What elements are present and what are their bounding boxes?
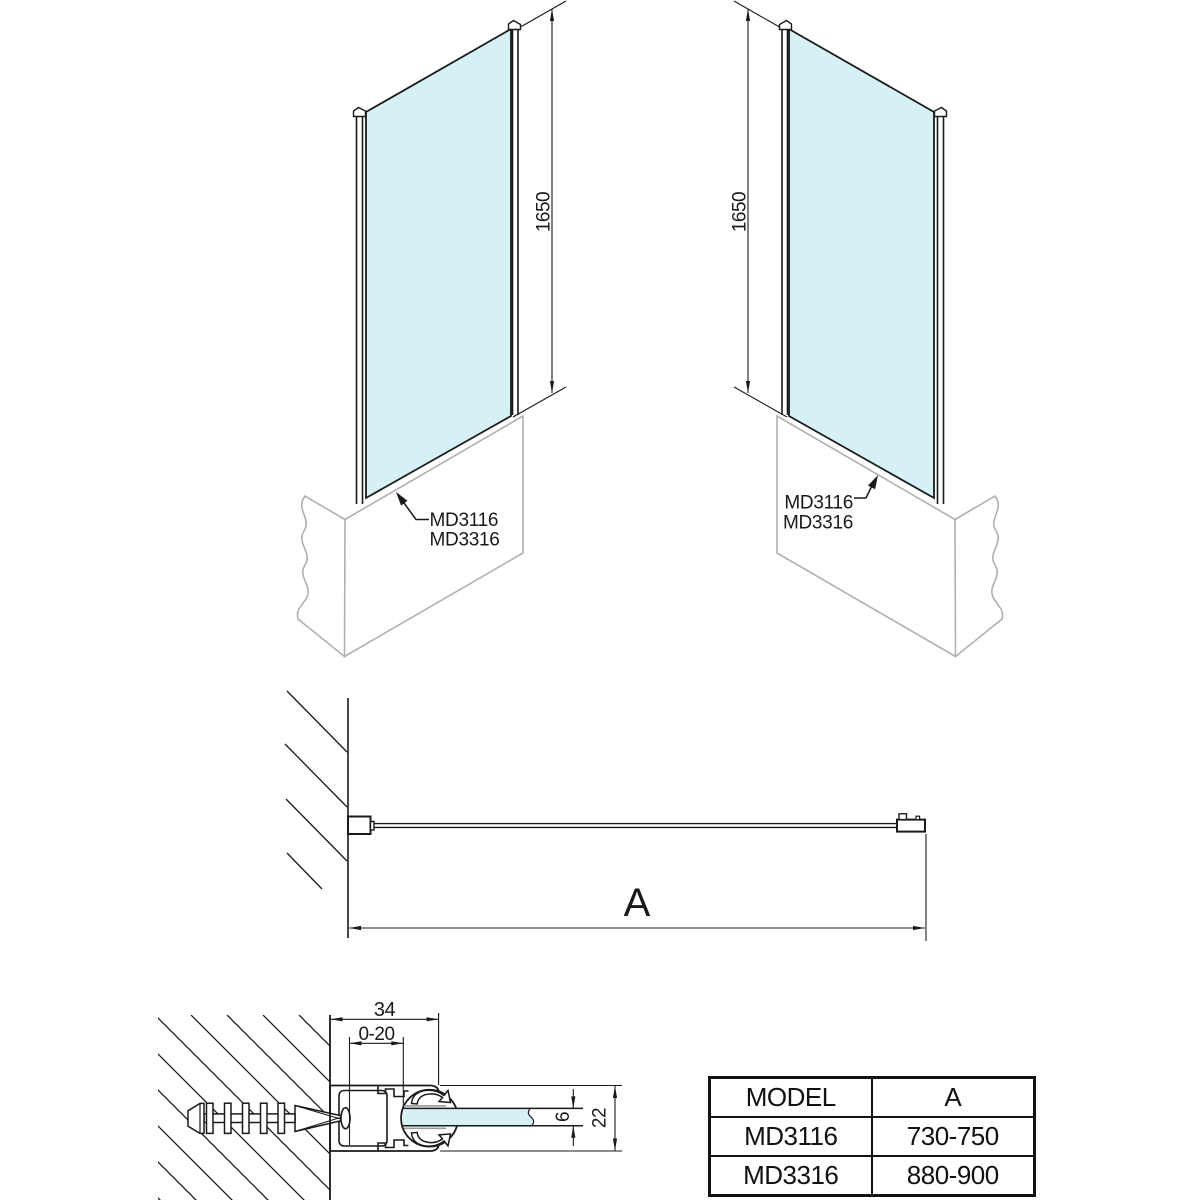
drawing-canvas: 1650 MD3116 MD3316 1650 MD3116 MD3316 A xyxy=(0,0,1200,1200)
front-view-right xyxy=(734,1,1003,657)
height-dimension-label: 1650 xyxy=(534,192,555,232)
dim-arrow-up xyxy=(550,9,554,21)
end-cap-detail xyxy=(899,814,907,820)
model-label-1: MD3116 xyxy=(430,510,499,531)
glass-plan-lines xyxy=(374,824,897,828)
dimension-A: A xyxy=(349,834,926,941)
wall-bracket-tab xyxy=(371,822,375,831)
dim-arrow-left xyxy=(349,926,361,930)
leader-arrow xyxy=(396,492,408,506)
table-row: MD3316 880-900 xyxy=(710,1156,1035,1196)
profile-height-label: 22 xyxy=(590,1108,611,1128)
bathtub-broken-side xyxy=(297,496,345,657)
section-detail: 34 0-20 6 22 xyxy=(0,999,622,1200)
wall-anchor-dowel xyxy=(188,1103,295,1133)
table-header-row: MODEL A xyxy=(710,1078,1035,1118)
leader-arrow xyxy=(868,475,878,489)
plan-view: A xyxy=(285,691,926,941)
dim-arrow-down xyxy=(550,381,554,393)
screw-head xyxy=(341,1108,350,1129)
profile-width-label: 34 xyxy=(374,999,396,1021)
spec-table: MODEL A MD3116 730-750 MD3316 880-900 xyxy=(708,1076,1036,1197)
table-header-model: MODEL xyxy=(710,1078,872,1118)
model-label-2: MD3316 xyxy=(783,513,853,534)
dim-arrow-right xyxy=(913,926,925,930)
glass-thickness-label: 6 xyxy=(553,1112,574,1122)
height-dimension-label: 1650 xyxy=(730,192,751,232)
wall-bracket xyxy=(348,817,371,835)
model-label-1: MD3116 xyxy=(784,493,853,514)
table-cell-a: 730-750 xyxy=(872,1117,1035,1156)
table-cell-model: MD3116 xyxy=(710,1117,872,1156)
adjust-range-label: 0-20 xyxy=(358,1024,394,1045)
profile-top-cap xyxy=(509,21,521,30)
table-row: MD3116 730-750 xyxy=(710,1117,1035,1156)
table-cell-model: MD3316 xyxy=(710,1156,872,1196)
technical-drawing-page: 1650 MD3116 MD3316 1650 MD3116 MD3316 A xyxy=(0,0,1200,1200)
width-dimension-label: A xyxy=(624,881,651,925)
end-cap-profile xyxy=(897,820,925,832)
wall-hatch xyxy=(285,691,347,889)
table-cell-a: 880-900 xyxy=(872,1156,1035,1196)
profile-top-cap xyxy=(354,108,366,117)
front-view-left xyxy=(297,1,566,657)
end-cap-tick xyxy=(916,816,920,819)
dowel-tip xyxy=(188,1103,204,1133)
dimension-6: 6 xyxy=(553,1089,575,1146)
far-edge-profile xyxy=(354,108,366,505)
glass-panel xyxy=(366,29,511,498)
model-label-2: MD3316 xyxy=(430,530,500,551)
table-header-a: A xyxy=(872,1078,1035,1118)
